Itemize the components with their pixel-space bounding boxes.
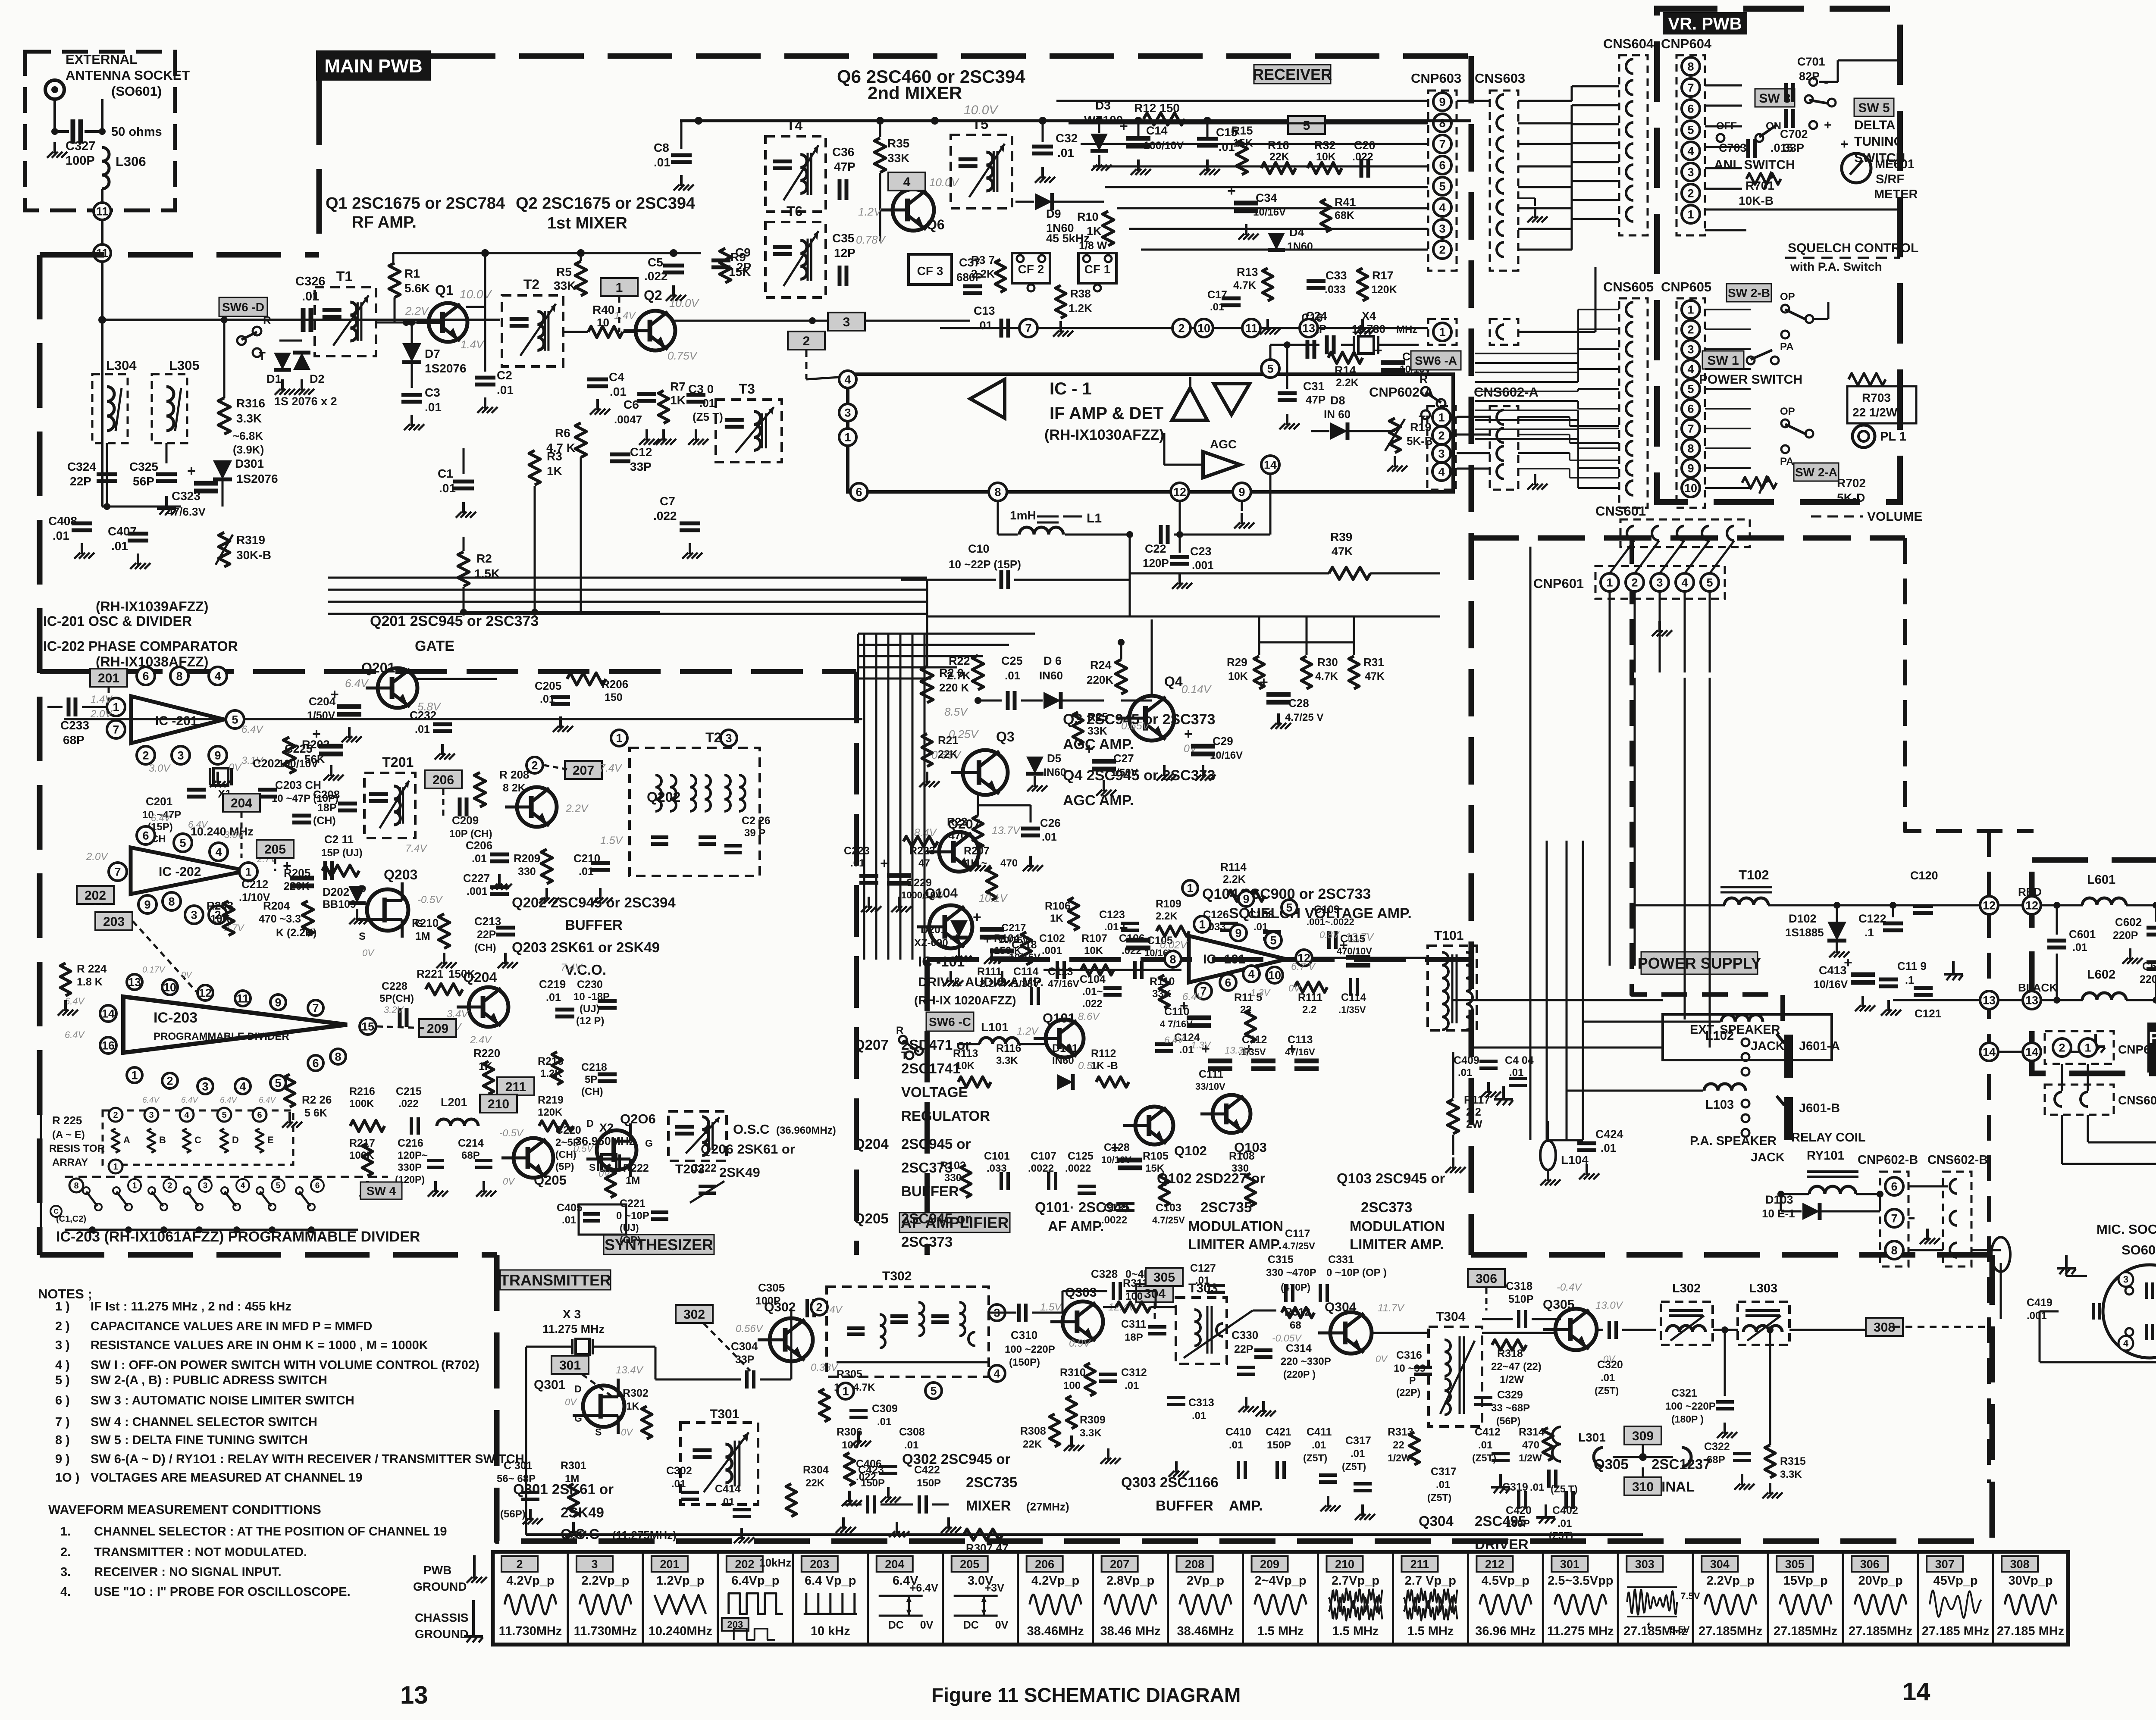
svg-text:C302: C302 xyxy=(666,1465,692,1477)
svg-text:4: 4 xyxy=(1248,967,1254,980)
svg-text:C227: C227 xyxy=(463,872,490,885)
svg-text:L602: L602 xyxy=(2087,968,2115,982)
svg-text:.1: .1 xyxy=(1865,926,1874,939)
svg-text:2SC735: 2SC735 xyxy=(966,1474,1017,1490)
svg-text:10K: 10K xyxy=(1084,945,1103,957)
svg-text:6: 6 xyxy=(1225,976,1231,989)
svg-text:Q207: Q207 xyxy=(854,1037,889,1053)
svg-text:SW 5: SW 5 xyxy=(1858,101,1890,115)
svg-text:10/16V: 10/16V xyxy=(1210,750,1243,761)
svg-text:120P: 120P xyxy=(1143,557,1169,569)
svg-text:10.1V: 10.1V xyxy=(979,892,1008,904)
svg-text:212: 212 xyxy=(1485,1558,1504,1571)
svg-text:4.7K: 4.7K xyxy=(1315,670,1338,682)
svg-text:R301: R301 xyxy=(561,1460,586,1472)
svg-text:2.2: 2.2 xyxy=(1302,1004,1316,1016)
svg-text:R220: R220 xyxy=(473,1047,500,1060)
svg-text:.001~.0022: .001~.0022 xyxy=(1307,916,1354,927)
svg-text:D5: D5 xyxy=(1047,752,1061,765)
svg-text:.01: .01 xyxy=(546,991,561,1004)
svg-text:14: 14 xyxy=(2025,1045,2038,1058)
svg-text:10: 10 xyxy=(1684,482,1697,494)
svg-text:6.4V: 6.4V xyxy=(241,724,263,735)
svg-text:1K -B: 1K -B xyxy=(1091,1060,1118,1072)
svg-text:D: D xyxy=(232,1135,239,1145)
svg-text:G: G xyxy=(645,1138,653,1149)
svg-text:8: 8 xyxy=(1439,116,1445,129)
svg-text:R39: R39 xyxy=(1330,530,1352,544)
svg-text:16: 16 xyxy=(102,1039,115,1052)
svg-text:+: + xyxy=(973,909,981,926)
svg-text:D 6: D 6 xyxy=(1044,654,1062,667)
svg-text:5: 5 xyxy=(276,1182,281,1191)
svg-text:22~47 (22): 22~47 (22) xyxy=(1491,1361,1542,1373)
svg-text:.01: .01 xyxy=(1210,301,1224,313)
svg-text:301: 301 xyxy=(1560,1558,1579,1571)
svg-text:6: 6 xyxy=(315,1182,320,1191)
svg-text:RECEIVER: RECEIVER xyxy=(1253,66,1332,83)
svg-text:PA: PA xyxy=(1780,341,1794,353)
svg-text:2W: 2W xyxy=(1466,1118,1482,1130)
svg-text:204: 204 xyxy=(885,1558,904,1571)
svg-text:4: 4 xyxy=(241,1182,245,1191)
svg-text:7: 7 xyxy=(1891,1212,1897,1225)
svg-text:.01: .01 xyxy=(425,400,442,414)
svg-text:C601: C601 xyxy=(2069,928,2096,941)
svg-text:207: 207 xyxy=(1110,1558,1129,1571)
svg-text:1.3V: 1.3V xyxy=(1250,987,1271,998)
svg-text:0.9V: 0.9V xyxy=(1069,1338,1091,1349)
svg-text:(12 P): (12 P) xyxy=(576,1015,604,1027)
svg-text:1.2V: 1.2V xyxy=(1017,1026,1039,1037)
svg-text:R6: R6 xyxy=(555,426,570,440)
svg-text:.022: .022 xyxy=(856,1471,876,1483)
svg-text:7: 7 xyxy=(113,723,119,736)
svg-text:2SC373: 2SC373 xyxy=(901,1234,953,1250)
svg-text:C411: C411 xyxy=(1307,1426,1332,1438)
svg-text:C109: C109 xyxy=(1314,904,1340,916)
svg-text:7: 7 xyxy=(1687,81,1694,94)
svg-text:309: 309 xyxy=(1632,1429,1654,1443)
svg-text:.022: .022 xyxy=(653,509,677,522)
svg-text:C421: C421 xyxy=(1266,1426,1291,1438)
svg-text:3.3K: 3.3K xyxy=(236,412,262,425)
svg-text:.01: .01 xyxy=(720,1496,734,1508)
svg-text:1: 1 xyxy=(113,701,119,713)
svg-text:IN 60: IN 60 xyxy=(1324,408,1351,421)
svg-text:8 ): 8 ) xyxy=(55,1433,70,1447)
svg-text:C313: C313 xyxy=(1188,1397,1214,1409)
svg-text:1.4V: 1.4V xyxy=(91,694,113,705)
svg-text:C317: C317 xyxy=(1431,1466,1457,1478)
svg-text:6: 6 xyxy=(1439,159,1445,172)
svg-text:JACK: JACK xyxy=(1751,1151,1785,1164)
svg-text:Q2O6: Q2O6 xyxy=(620,1111,656,1126)
svg-text:C17: C17 xyxy=(1207,289,1227,301)
svg-text:R701: R701 xyxy=(1745,179,1774,192)
svg-text:(470P): (470P) xyxy=(1281,1282,1310,1293)
svg-text:10: 10 xyxy=(597,316,609,329)
svg-text:22 1/2W: 22 1/2W xyxy=(1852,406,1898,419)
svg-text:+: + xyxy=(1119,920,1128,936)
svg-text:C125: C125 xyxy=(1068,1150,1094,1162)
svg-text:CNS602-B: CNS602-B xyxy=(1927,1153,1988,1167)
svg-text:C27: C27 xyxy=(1113,752,1134,765)
svg-text:C316: C316 xyxy=(1396,1349,1422,1361)
svg-text:C23: C23 xyxy=(1190,545,1212,558)
svg-text:4.5Vp_p: 4.5Vp_p xyxy=(1482,1574,1529,1588)
svg-text:56K: 56K xyxy=(304,753,325,766)
svg-text:Q3: Q3 xyxy=(996,729,1015,744)
svg-text:50 ohms: 50 ohms xyxy=(111,125,162,139)
svg-text:10P (CH): 10P (CH) xyxy=(449,828,492,840)
svg-text:C309: C309 xyxy=(872,1403,898,1415)
svg-text:WZ100: WZ100 xyxy=(1084,113,1123,127)
svg-text:R216: R216 xyxy=(349,1085,375,1098)
svg-text:C201: C201 xyxy=(146,795,172,808)
svg-text:1: 1 xyxy=(245,865,251,878)
svg-text:C205: C205 xyxy=(535,679,561,692)
svg-text:OP: OP xyxy=(1780,291,1795,303)
svg-text:C101: C101 xyxy=(984,1150,1010,1162)
svg-text:CF 2: CF 2 xyxy=(1018,263,1044,276)
svg-text:8: 8 xyxy=(335,1050,341,1063)
svg-text:SW6 -C: SW6 -C xyxy=(929,1015,971,1029)
svg-text:C413: C413 xyxy=(1819,964,1847,977)
svg-text:1: 1 xyxy=(1438,411,1445,424)
svg-text:(36.960MHz): (36.960MHz) xyxy=(776,1125,836,1136)
svg-text:.01: .01 xyxy=(1192,1410,1206,1422)
svg-text:11.275 MHz: 11.275 MHz xyxy=(1547,1624,1614,1638)
svg-text:2: 2 xyxy=(1687,323,1694,336)
svg-text:D: D xyxy=(586,1118,594,1129)
svg-text:150: 150 xyxy=(605,691,623,704)
svg-text:EXT. SPEAKER: EXT. SPEAKER xyxy=(1690,1023,1780,1037)
svg-text:.01: .01 xyxy=(1436,1479,1450,1491)
svg-text:Q1 2SC1675 or 2SC784: Q1 2SC1675 or 2SC784 xyxy=(326,194,505,213)
svg-text:2.: 2. xyxy=(60,1545,71,1559)
svg-text:10.0V: 10.0V xyxy=(460,288,492,301)
svg-text:CNS603: CNS603 xyxy=(1475,71,1525,86)
svg-text:4: 4 xyxy=(903,175,911,189)
svg-text:201: 201 xyxy=(660,1558,679,1571)
svg-text:SW6 -A: SW6 -A xyxy=(1415,354,1457,367)
svg-text:5: 5 xyxy=(1303,119,1310,133)
svg-text:C5: C5 xyxy=(648,256,663,269)
svg-text:22K: 22K xyxy=(938,748,958,760)
svg-text:+: + xyxy=(1111,1140,1119,1156)
svg-text:D: D xyxy=(359,883,366,895)
svg-text:14: 14 xyxy=(1983,1045,1996,1058)
svg-text:27.185MHz: 27.185MHz xyxy=(1623,1624,1687,1638)
svg-text:8.6V: 8.6V xyxy=(1078,1011,1100,1023)
svg-text:22P: 22P xyxy=(70,475,91,488)
svg-text:2.2Vp_p: 2.2Vp_p xyxy=(1707,1574,1755,1588)
svg-text:J601-A: J601-A xyxy=(1799,1039,1840,1053)
svg-text:2SC945 or: 2SC945 or xyxy=(901,1210,971,1226)
svg-text:4.7/25V: 4.7/25V xyxy=(1152,1215,1185,1226)
svg-text:120P~: 120P~ xyxy=(398,1150,428,1161)
svg-text:10.240MHz: 10.240MHz xyxy=(649,1624,712,1638)
svg-text:.001: .001 xyxy=(1192,559,1214,572)
svg-text:Q202 2SC945 or 2SC394: Q202 2SC945 or 2SC394 xyxy=(512,894,676,910)
svg-text:207: 207 xyxy=(573,763,594,778)
svg-text:2P: 2P xyxy=(736,260,751,274)
svg-text:.01: .01 xyxy=(1478,1439,1492,1451)
svg-text:100: 100 xyxy=(1125,1291,1143,1302)
svg-text:R40: R40 xyxy=(592,303,614,316)
svg-text:6: 6 xyxy=(257,1110,262,1120)
svg-text:Q302 2SC945 or: Q302 2SC945 or xyxy=(902,1451,1010,1467)
svg-text:L306: L306 xyxy=(116,154,146,169)
svg-text:IC -101: IC -101 xyxy=(1203,952,1245,966)
svg-text:4.7/25V: 4.7/25V xyxy=(1282,1241,1315,1251)
svg-text:(A ~ E): (A ~ E) xyxy=(52,1129,85,1141)
svg-text:.0022: .0022 xyxy=(1065,1163,1091,1174)
svg-text:5 6K: 5 6K xyxy=(304,1107,327,1119)
svg-text:IC-202 PHASE COMPARATOR: IC-202 PHASE COMPARATOR xyxy=(43,638,238,654)
svg-text:3.3K: 3.3K xyxy=(1080,1427,1102,1439)
svg-text:4.7/25 V: 4.7/25 V xyxy=(1285,712,1323,723)
svg-text:R38: R38 xyxy=(1070,287,1091,300)
svg-text:2.7Vp_p: 2.7Vp_p xyxy=(1332,1574,1379,1588)
svg-text:T102: T102 xyxy=(1739,867,1769,882)
svg-text:R305: R305 xyxy=(837,1368,862,1380)
svg-text:1: 1 xyxy=(131,1069,138,1082)
svg-text:C123: C123 xyxy=(1099,909,1125,921)
svg-text:1/2W: 1/2W xyxy=(1519,1452,1542,1464)
svg-text:(5P): (5P) xyxy=(555,1161,574,1172)
svg-text:NOTES ;: NOTES ; xyxy=(38,1286,92,1301)
svg-text:6.4V: 6.4V xyxy=(1182,991,1204,1003)
svg-text:D1: D1 xyxy=(266,372,282,385)
svg-text:7: 7 xyxy=(312,1001,319,1014)
svg-text:MIC. SOCKET: MIC. SOCKET xyxy=(2096,1222,2156,1237)
svg-text:5: 5 xyxy=(1439,180,1445,193)
svg-text:R703: R703 xyxy=(1862,391,1891,404)
svg-text:JACK: JACK xyxy=(1751,1039,1785,1053)
svg-text:C35: C35 xyxy=(832,231,854,245)
svg-text:C222: C222 xyxy=(691,1162,717,1174)
svg-text:204: 204 xyxy=(231,796,252,810)
svg-text:C3: C3 xyxy=(425,386,440,399)
svg-text:(22P): (22P) xyxy=(1396,1387,1420,1398)
svg-text:(CH): (CH) xyxy=(313,815,336,827)
svg-text:D7: D7 xyxy=(425,347,440,360)
svg-text:1S 2076 x 2: 1S 2076 x 2 xyxy=(274,395,337,408)
svg-text:1K: 1K xyxy=(670,394,686,407)
svg-text:CNP606: CNP606 xyxy=(2118,1043,2156,1056)
svg-text:Q1: Q1 xyxy=(435,282,454,298)
svg-text:10: 10 xyxy=(1268,969,1281,982)
svg-text:C14: C14 xyxy=(1146,124,1168,137)
svg-text:11.275 MHz: 11.275 MHz xyxy=(542,1323,605,1335)
svg-text:1M: 1M xyxy=(626,1175,640,1186)
svg-text:+: + xyxy=(1840,136,1849,152)
svg-text:R32: R32 xyxy=(1314,139,1336,152)
svg-text:C219: C219 xyxy=(539,978,566,991)
svg-text:IN60: IN60 xyxy=(1052,1055,1074,1066)
svg-text:IC -201: IC -201 xyxy=(155,714,197,728)
svg-text:209: 209 xyxy=(1260,1558,1279,1571)
svg-text:(220P ): (220P ) xyxy=(1283,1369,1316,1380)
svg-text:C9: C9 xyxy=(735,246,751,259)
svg-text:+: + xyxy=(1119,118,1128,134)
svg-text:47P: 47P xyxy=(1306,393,1326,406)
svg-text:68P: 68P xyxy=(63,733,85,747)
svg-text:(Z5T): (Z5T) xyxy=(1303,1452,1327,1464)
svg-text:.01: .01 xyxy=(1229,1439,1243,1451)
svg-text:305: 305 xyxy=(1153,1270,1175,1285)
svg-text:9: 9 xyxy=(214,749,221,762)
svg-text:D9: D9 xyxy=(1046,207,1061,220)
svg-text:47K: 47K xyxy=(1365,670,1385,682)
svg-text:.01: .01 xyxy=(1601,1141,1616,1154)
svg-text:C107: C107 xyxy=(1031,1150,1056,1162)
svg-text:C331: C331 xyxy=(1328,1254,1354,1266)
svg-text:4.2Vp_p: 4.2Vp_p xyxy=(506,1574,554,1588)
svg-text:P.A. SPEAKER: P.A. SPEAKER xyxy=(1690,1134,1777,1148)
svg-text:L302: L302 xyxy=(1672,1282,1701,1295)
svg-text:L201: L201 xyxy=(441,1096,467,1109)
svg-text:C212: C212 xyxy=(241,878,268,891)
svg-text:C120: C120 xyxy=(1910,869,1938,882)
svg-text:36.96 MHz: 36.96 MHz xyxy=(1475,1624,1536,1638)
svg-text:Q4 2SC945 or 2SC373: Q4 2SC945 or 2SC373 xyxy=(1063,767,1215,784)
svg-text:.0047: .0047 xyxy=(614,413,642,426)
svg-text:R319: R319 xyxy=(236,533,265,547)
svg-text:45Vp_p: 45Vp_p xyxy=(1933,1574,1977,1588)
svg-text:RECEIVER : NO SIGNAL IN: RECEIVER : NO SIGNAL INPUT. xyxy=(94,1565,282,1579)
svg-text:1: 1 xyxy=(616,281,623,295)
svg-text:R21: R21 xyxy=(938,734,959,747)
svg-text:12: 12 xyxy=(2025,899,2038,912)
svg-text:T101: T101 xyxy=(1434,929,1463,943)
svg-text:4: 4 xyxy=(993,1367,1000,1380)
svg-text:AGC AMP.: AGC AMP. xyxy=(1063,736,1134,753)
svg-text:2SC1741: 2SC1741 xyxy=(901,1060,961,1076)
svg-text:7.5V: 7.5V xyxy=(1680,1591,1700,1601)
svg-text:2.7K: 2.7K xyxy=(947,669,971,682)
svg-text:100 ~220P: 100 ~220P xyxy=(1665,1401,1716,1412)
svg-text:2.7 Vp_p: 2.7 Vp_p xyxy=(1405,1574,1456,1588)
svg-text:C202: C202 xyxy=(253,757,281,770)
svg-text:.01: .01 xyxy=(302,290,319,303)
svg-text:1: 1 xyxy=(1606,576,1613,589)
svg-text:1.5 MHz: 1.5 MHz xyxy=(1407,1624,1454,1638)
svg-text:C330: C330 xyxy=(1232,1329,1258,1342)
svg-text:C602: C602 xyxy=(2115,916,2142,929)
svg-text:P: P xyxy=(1409,1375,1416,1386)
svg-text:SW6 -D: SW6 -D xyxy=(222,300,264,314)
svg-text:3: 3 xyxy=(1687,166,1694,178)
svg-text:C6: C6 xyxy=(624,398,639,411)
svg-text:SW 4: SW 4 xyxy=(367,1184,396,1198)
svg-text:R207: R207 xyxy=(964,845,990,857)
svg-text:15: 15 xyxy=(361,1020,374,1033)
svg-text:T6: T6 xyxy=(787,203,802,219)
svg-text:Q203: Q203 xyxy=(384,867,417,882)
svg-text:-0.5V: -0.5V xyxy=(499,1127,524,1138)
svg-text:R202: R202 xyxy=(302,738,330,751)
svg-text:(RH-IX1038AFZZ): (RH-IX1038AFZZ) xyxy=(96,654,208,669)
svg-text:2: 2 xyxy=(531,759,538,772)
svg-text:C215: C215 xyxy=(396,1085,422,1098)
svg-text:2.2V: 2.2V xyxy=(405,304,429,317)
svg-text:4 ): 4 ) xyxy=(55,1358,70,1372)
svg-text:L305: L305 xyxy=(169,358,200,373)
svg-text:AGC: AGC xyxy=(1210,438,1237,451)
svg-text:(RH-IX 1020AFZZ): (RH-IX 1020AFZZ) xyxy=(914,994,1016,1007)
svg-text:(56P): (56P) xyxy=(1496,1415,1520,1426)
svg-text:T304: T304 xyxy=(1436,1310,1466,1324)
svg-text:9: 9 xyxy=(1235,926,1241,939)
svg-text:R304: R304 xyxy=(803,1464,829,1476)
svg-text:SW 2-B: SW 2-B xyxy=(1728,286,1770,300)
svg-text:CNS606: CNS606 xyxy=(2118,1094,2156,1107)
svg-text:MAIN PWB: MAIN PWB xyxy=(324,56,422,77)
svg-text:S/RF: S/RF xyxy=(1876,172,1904,186)
svg-text:(27MHz): (27MHz) xyxy=(1026,1500,1069,1513)
svg-text:30K-B: 30K-B xyxy=(236,548,271,562)
svg-text:1/2W: 1/2W xyxy=(1388,1452,1411,1464)
svg-text:13: 13 xyxy=(1983,994,1996,1007)
svg-text:R10: R10 xyxy=(1077,210,1099,223)
svg-text:3: 3 xyxy=(725,732,732,744)
svg-text:2SC373: 2SC373 xyxy=(1361,1199,1412,1215)
svg-text:1 ): 1 ) xyxy=(55,1300,70,1313)
svg-text:330: 330 xyxy=(944,1172,962,1184)
svg-text:RESIS TOR: RESIS TOR xyxy=(49,1143,105,1154)
svg-text:56P: 56P xyxy=(133,475,154,488)
svg-text:306: 306 xyxy=(1476,1272,1497,1286)
svg-text:-0.5V: -0.5V xyxy=(417,894,443,906)
svg-text:206: 206 xyxy=(1035,1558,1054,1571)
svg-text:38.46 MHz: 38.46 MHz xyxy=(1100,1624,1160,1638)
svg-text:DRIVER: DRIVER xyxy=(1475,1536,1529,1552)
svg-text:(RH-IX1030AFZZ): (RH-IX1030AFZZ) xyxy=(1044,427,1164,443)
svg-text:R112: R112 xyxy=(1091,1048,1116,1060)
svg-text:C204: C204 xyxy=(309,695,336,708)
svg-text:22K: 22K xyxy=(1023,1439,1042,1450)
svg-text:R24: R24 xyxy=(1090,659,1112,672)
svg-text:C315: C315 xyxy=(1268,1254,1294,1266)
svg-text:3.4V: 3.4V xyxy=(447,1008,469,1020)
svg-text:.01: .01 xyxy=(1351,1448,1365,1460)
svg-text:R105: R105 xyxy=(1143,1150,1169,1162)
svg-text:3: 3 xyxy=(1439,222,1445,235)
svg-text:C208: C208 xyxy=(313,788,340,801)
svg-text:L104: L104 xyxy=(1561,1153,1589,1166)
svg-text:POWER SUPPLY: POWER SUPPLY xyxy=(1638,954,1761,972)
svg-text:5: 5 xyxy=(179,836,186,849)
svg-text:8: 8 xyxy=(74,1181,78,1191)
svg-text:C327: C327 xyxy=(66,139,95,153)
svg-text:.01: .01 xyxy=(415,723,430,735)
svg-text:C28: C28 xyxy=(1288,697,1309,710)
svg-text:7 ): 7 ) xyxy=(55,1415,70,1429)
svg-text:.01: .01 xyxy=(1219,141,1235,153)
svg-text:.01: .01 xyxy=(1601,1372,1615,1384)
svg-text:1: 1 xyxy=(1687,208,1694,221)
svg-text:0V: 0V xyxy=(503,1176,515,1187)
svg-text:7.4V: 7.4V xyxy=(405,843,427,854)
svg-text:330P: 330P xyxy=(398,1162,422,1173)
svg-text:1: 1 xyxy=(616,732,622,744)
svg-text:.01: .01 xyxy=(1005,669,1020,682)
svg-text:R2 26: R2 26 xyxy=(302,1093,332,1106)
svg-text:10 E-1: 10 E-1 xyxy=(1762,1207,1795,1220)
